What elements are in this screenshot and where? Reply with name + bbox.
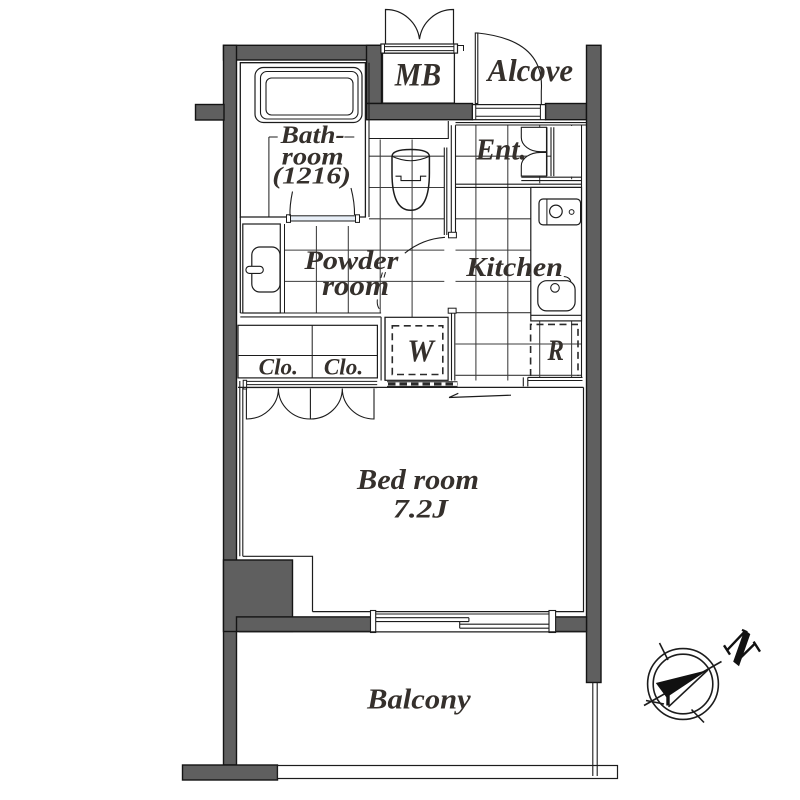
svg-text:R: R — [547, 335, 564, 367]
svg-text:Ent.: Ent. — [475, 132, 527, 167]
svg-text:Kitchen: Kitchen — [465, 251, 563, 282]
svg-text:Alcove: Alcove — [486, 52, 573, 88]
svg-text:(1216): (1216) — [272, 163, 351, 190]
svg-text:Clo.: Clo. — [324, 354, 363, 379]
svg-text:Bed room: Bed room — [356, 464, 479, 496]
svg-text:7.2J: 7.2J — [393, 494, 449, 524]
svg-text:Balcony: Balcony — [366, 684, 471, 716]
svg-text:MB: MB — [394, 58, 441, 94]
svg-text:W: W — [407, 333, 436, 369]
svg-text:Clo.: Clo. — [259, 354, 298, 379]
svg-text:room: room — [322, 270, 389, 302]
